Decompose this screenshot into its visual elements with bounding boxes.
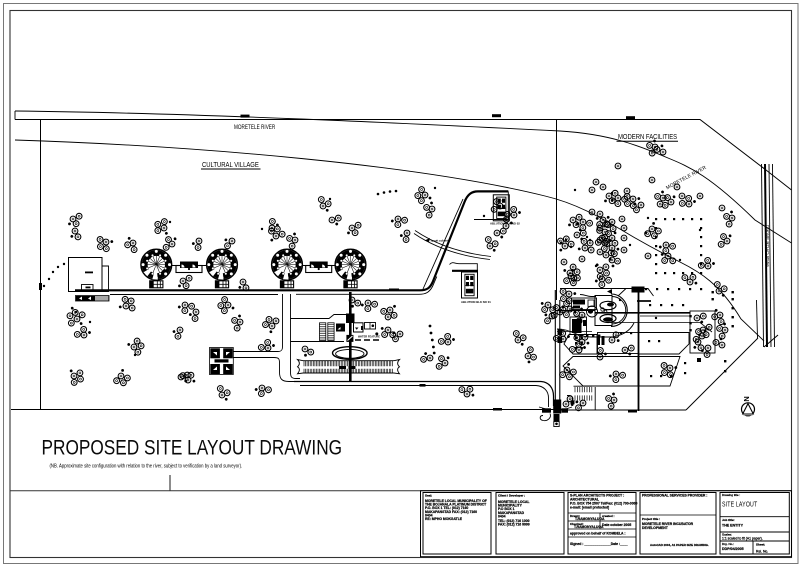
svg-text:AutoCAD 2004, A1 PAPER SIZE DR: AutoCAD 2004, A1 PAPER SIZE DRAWING. (650, 543, 709, 547)
svg-text:DDP/04/2005: DDP/04/2005 (722, 547, 744, 551)
svg-text:1:1 scaled to fit (A1 paper).: 1:1 scaled to fit (A1 paper). (722, 537, 763, 541)
svg-text:SITE LAYOUT: SITE LAYOUT (722, 501, 757, 509)
svg-text:Client / Developer :: Client / Developer : (498, 494, 525, 498)
svg-text:RE: MPHO MOKGATLE: RE: MPHO MOKGATLE (425, 517, 463, 521)
svg-text:Job title:: Job title: (722, 518, 735, 522)
svg-text:spruit culvert: spruit culvert (431, 239, 449, 243)
svg-text:PROFESSIONAL SERVICES PROVIDER: PROFESSIONAL SERVICES PROVIDER : (642, 494, 707, 498)
svg-text:Drawing title :: Drawing title : (722, 493, 740, 497)
svg-text:Rel. No.: Rel. No. (756, 550, 768, 554)
svg-text:Signed : ______________Date :_: Signed : ______________Date :____ (570, 542, 628, 546)
svg-text:N: N (742, 396, 751, 401)
svg-text:ABLUTION BLK NO 01: ABLUTION BLK NO 01 (461, 300, 491, 304)
svg-text:MAKAPANSTAD FAX: (012) 716: MAKAPANSTAD FAX: (012) 7160 (425, 510, 477, 514)
svg-text:PROPOSED SITE LAYOUT DRAWING: PROPOSED SITE LAYOUT DRAWING (42, 436, 343, 460)
svg-text:Date october 2005: Date october 2005 (602, 523, 631, 527)
svg-text:T.RAMONYALUOA: T.RAMONYALUOA (574, 525, 604, 529)
svg-text:e-mail: [email protected]: e-mail: [email protected] (570, 506, 609, 510)
svg-text:CULTURAL VILLAGE: CULTURAL VILLAGE (202, 161, 259, 169)
svg-text:Project title :: Project title : (642, 517, 660, 521)
svg-text:Drg. No.:: Drg. No.: (722, 542, 734, 546)
svg-text:DEVELOPMENT: DEVELOPMENT (642, 526, 669, 530)
svg-text:MORETELE RIVER: MORETELE RIVER (234, 124, 275, 131)
svg-text:T.RAMONYALUOA: T.RAMONYALUOA (575, 517, 605, 521)
svg-text:created :: created : (602, 514, 615, 518)
svg-text:Sheet:: Sheet: (756, 543, 765, 547)
svg-text:Seal:: Seal: (425, 494, 432, 498)
svg-text:approved on behalf of KOMBELA: approved on behalf of KOMBELA : (570, 532, 625, 536)
svg-text:MODERN FACILITIES: MODERN FACILITIES (618, 133, 678, 141)
svg-text:0404: 0404 (498, 514, 506, 518)
svg-text:WATER FEATURE: WATER FEATURE (358, 335, 380, 339)
svg-text:THE ENTITY: THE ENTITY (722, 524, 744, 528)
svg-text:FAX: (012) 716 9999: FAX: (012) 716 9999 (498, 523, 530, 527)
svg-text:(NB. Approximate site config: (NB. Approximate site configuration with… (50, 463, 243, 468)
svg-text:DIKWE ROAD R556: DIKWE ROAD R556 (765, 225, 770, 267)
